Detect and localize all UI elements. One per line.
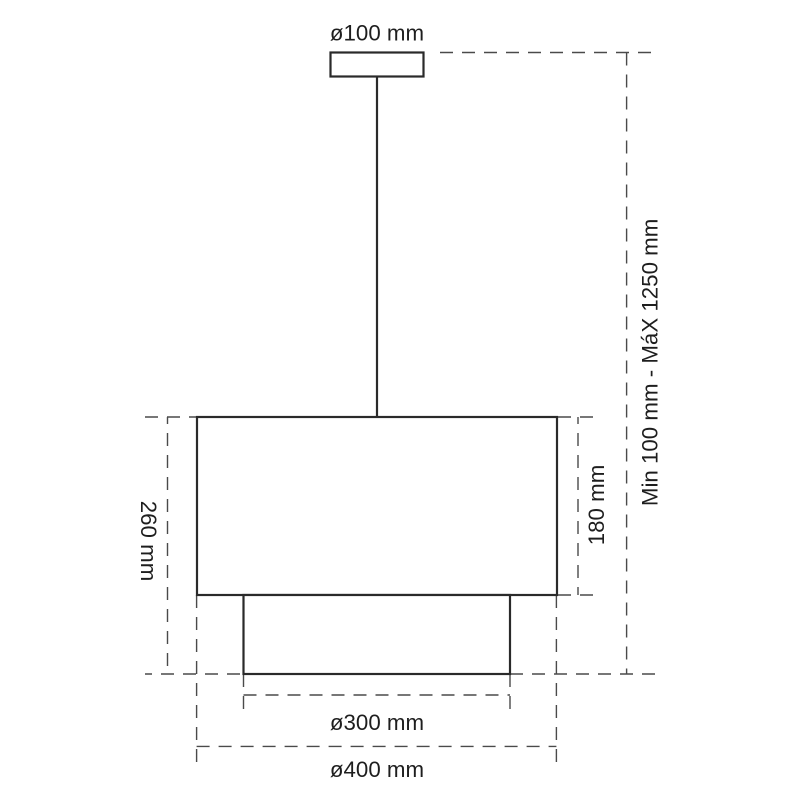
svg-text:180 mm: 180 mm bbox=[584, 465, 609, 546]
svg-text:260 mm: 260 mm bbox=[136, 501, 161, 582]
svg-text:ø100 mm: ø100 mm bbox=[330, 21, 424, 46]
svg-text:ø400 mm: ø400 mm bbox=[330, 757, 424, 782]
svg-text:ø300 mm: ø300 mm bbox=[330, 710, 424, 735]
svg-text:Min 100 mm - MáX 1250 mm: Min 100 mm - MáX 1250 mm bbox=[638, 219, 663, 506]
